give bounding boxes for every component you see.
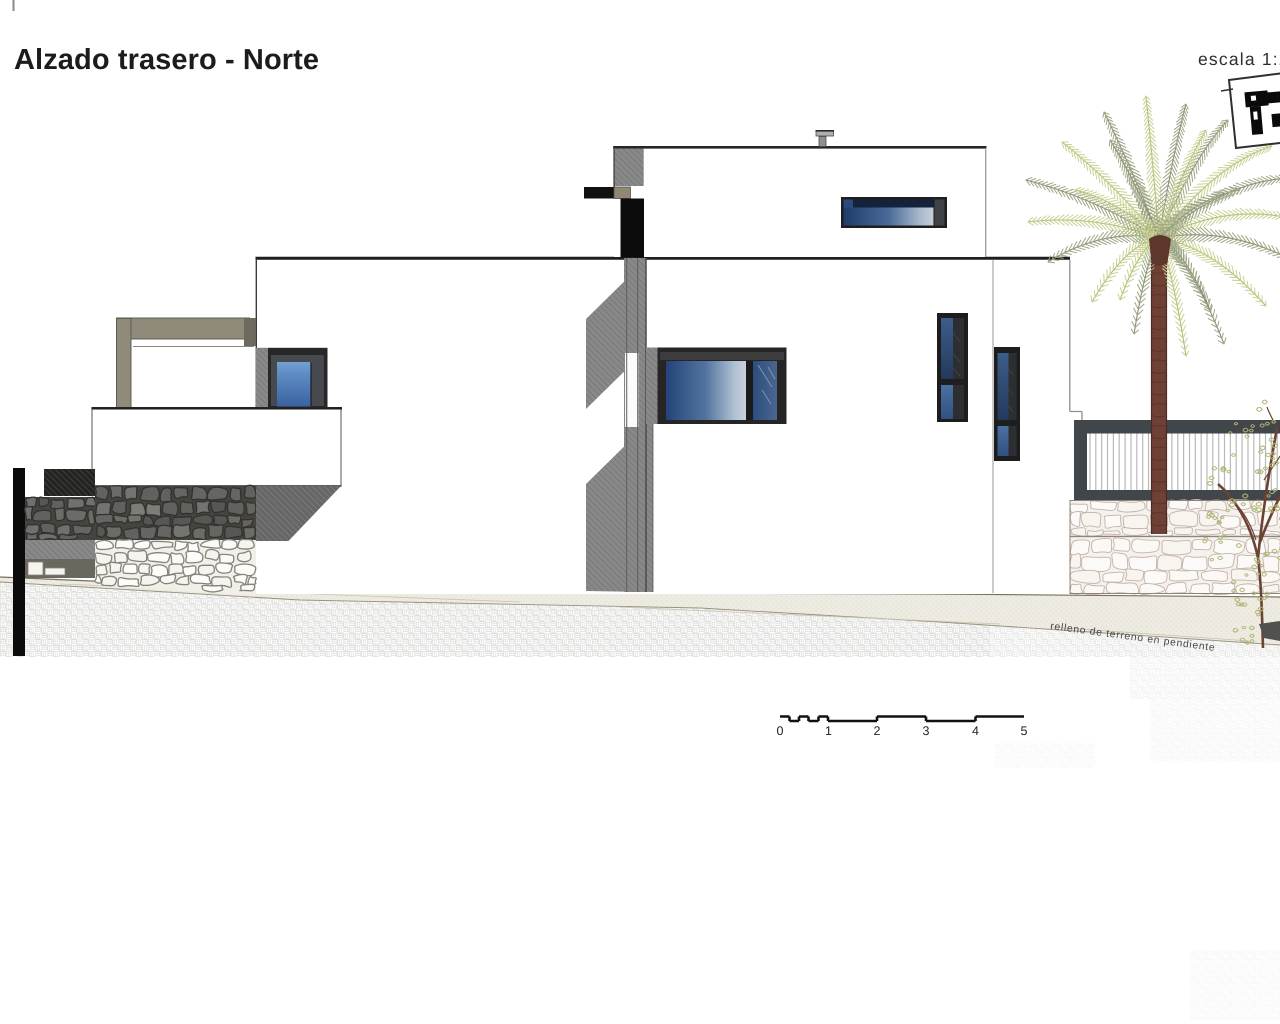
svg-text:escala 1:200: escala 1:200 <box>1198 49 1280 69</box>
svg-text:5: 5 <box>1021 724 1028 738</box>
svg-text:0: 0 <box>777 724 784 738</box>
svg-text:3: 3 <box>923 724 930 738</box>
svg-text:Alzado trasero - Norte: Alzado trasero - Norte <box>14 44 319 76</box>
svg-text:4: 4 <box>972 724 979 738</box>
svg-text:1: 1 <box>825 724 832 738</box>
svg-text:2: 2 <box>874 724 881 738</box>
